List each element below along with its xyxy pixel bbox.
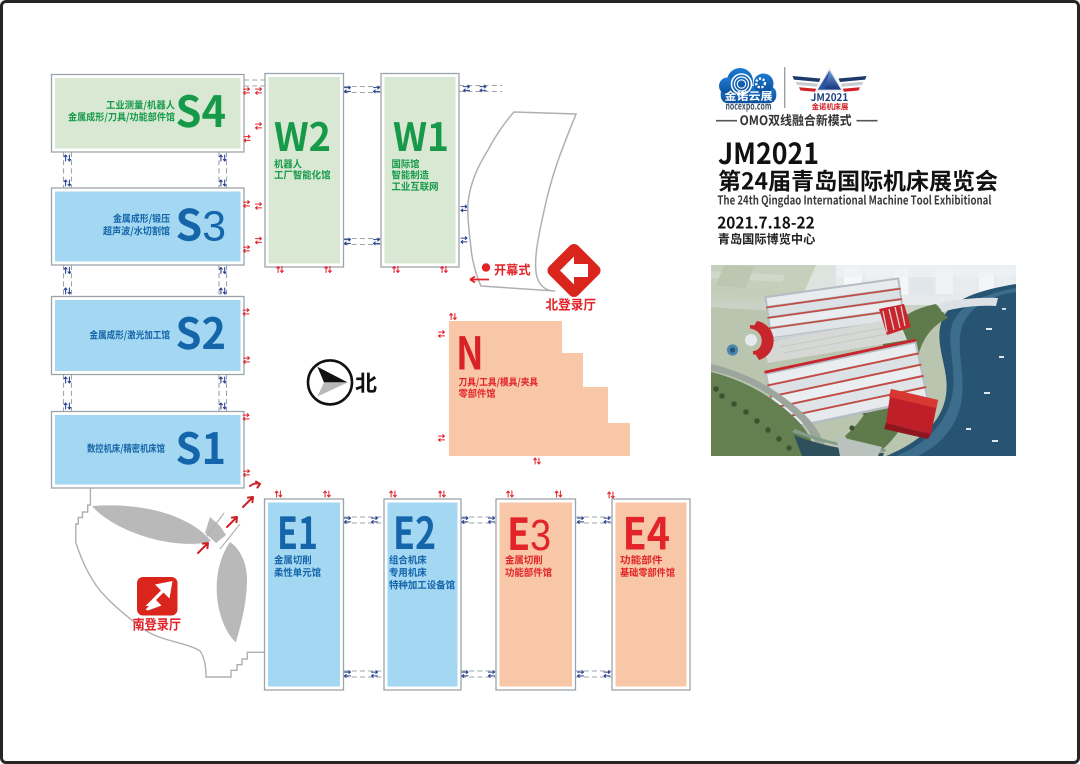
svg-text:超声波/水切割馆: 超声波/水切割馆 [103, 223, 170, 238]
svg-text:S4: S4 [176, 78, 227, 140]
svg-text:零部件馆: 零部件馆 [459, 385, 496, 400]
svg-text:开幕式: 开幕式 [494, 260, 531, 279]
svg-text:OMO双线融合新模式: OMO双线融合新模式 [740, 110, 852, 129]
svg-text:工业互联网: 工业互联网 [392, 178, 439, 193]
svg-text:特种加工设备馆: 特种加工设备馆 [389, 577, 455, 592]
svg-text:金属成形/激光加工馆: 金属成形/激光加工馆 [90, 327, 171, 342]
svg-text:青岛国际博览中心: 青岛国际博览中心 [718, 229, 816, 248]
svg-text:S1: S1 [176, 415, 227, 477]
svg-text:南登录厅: 南登录厅 [133, 615, 182, 635]
svg-text:北登录厅: 北登录厅 [546, 294, 597, 314]
svg-text:The 24th Qingdao International: The 24th Qingdao International Machine T… [717, 191, 991, 209]
svg-text:北: 北 [355, 366, 377, 398]
svg-text:数控机床/精密机床馆: 数控机床/精密机床馆 [87, 440, 165, 455]
svg-text:S3: S3 [176, 192, 227, 254]
svg-text:功能部件馆: 功能部件馆 [505, 564, 552, 579]
svg-text:基础零部件馆: 基础零部件馆 [620, 564, 675, 579]
svg-text:工厂智能化馆: 工厂智能化馆 [274, 167, 331, 182]
svg-text:柔性单元馆: 柔性单元馆 [274, 564, 321, 579]
svg-text:金属成形/刀具/功能部件馆: 金属成形/刀具/功能部件馆 [68, 109, 175, 124]
svg-text:S2: S2 [176, 300, 227, 362]
